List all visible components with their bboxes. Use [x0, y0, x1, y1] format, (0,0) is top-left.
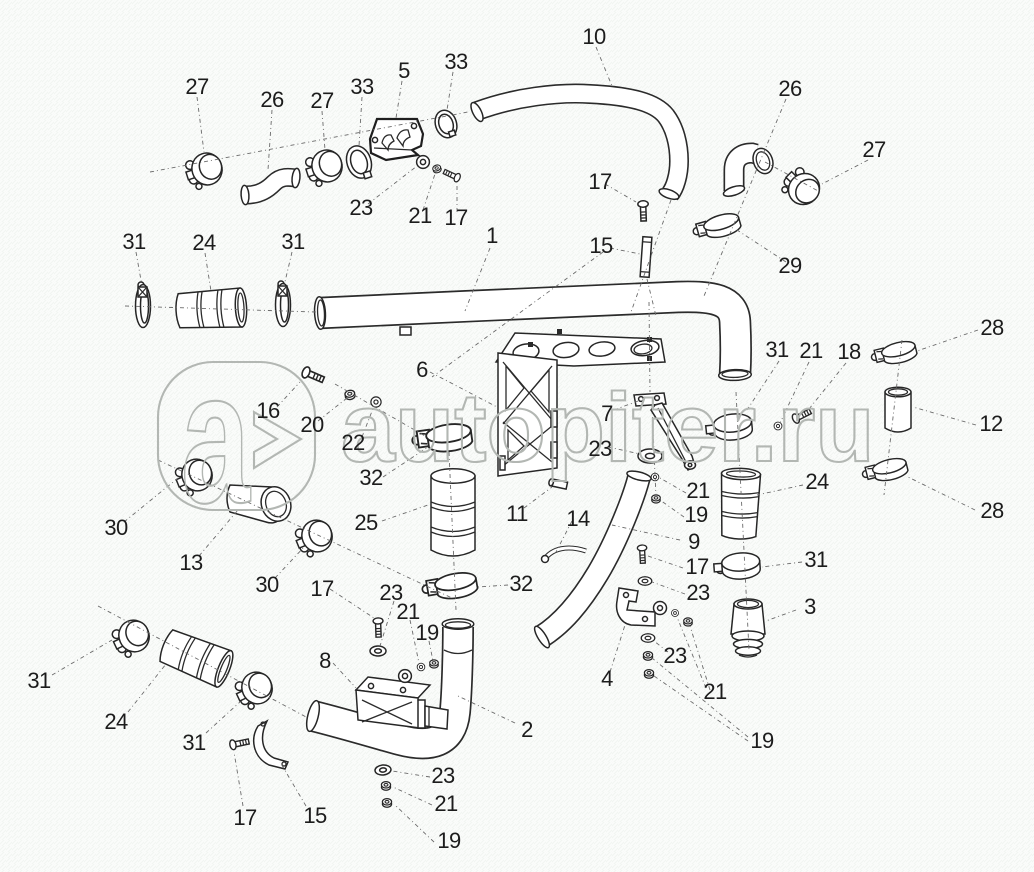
svg-text:31: 31 — [27, 668, 51, 693]
svg-text:19: 19 — [415, 620, 439, 645]
svg-text:14: 14 — [566, 506, 590, 531]
svg-text:23: 23 — [686, 580, 710, 605]
svg-text:31: 31 — [281, 229, 305, 254]
svg-text:28: 28 — [980, 498, 1004, 523]
svg-text:5: 5 — [398, 58, 410, 83]
svg-text:17: 17 — [310, 576, 334, 601]
svg-text:24: 24 — [192, 230, 216, 255]
svg-text:33: 33 — [350, 74, 374, 99]
svg-text:31: 31 — [182, 730, 206, 755]
svg-text:autopiter.ru: autopiter.ru — [341, 373, 875, 482]
svg-text:31: 31 — [804, 547, 828, 572]
svg-text:6: 6 — [416, 357, 428, 382]
svg-text:17: 17 — [588, 169, 612, 194]
svg-text:21: 21 — [686, 478, 710, 503]
svg-text:13: 13 — [179, 550, 203, 575]
svg-text:7: 7 — [601, 401, 613, 426]
svg-text:15: 15 — [589, 233, 613, 258]
svg-text:a: a — [181, 332, 251, 542]
svg-text:21: 21 — [703, 679, 727, 704]
svg-text:24: 24 — [104, 709, 128, 734]
svg-text:19: 19 — [437, 828, 461, 853]
svg-text:16: 16 — [256, 398, 280, 423]
svg-text:26: 26 — [778, 76, 802, 101]
svg-text:12: 12 — [979, 411, 1003, 436]
svg-text:23: 23 — [349, 195, 373, 220]
svg-text:24: 24 — [805, 469, 829, 494]
svg-text:3: 3 — [804, 594, 816, 619]
svg-text:17: 17 — [233, 805, 257, 830]
svg-text:4: 4 — [601, 666, 613, 691]
svg-text:28: 28 — [980, 315, 1004, 340]
svg-text:17: 17 — [685, 554, 709, 579]
svg-text:1: 1 — [486, 223, 498, 248]
svg-text:21: 21 — [799, 338, 823, 363]
svg-text:21: 21 — [408, 203, 432, 228]
svg-text:23: 23 — [431, 763, 455, 788]
svg-text:10: 10 — [582, 24, 606, 49]
svg-text:27: 27 — [862, 137, 886, 162]
svg-text:27: 27 — [310, 88, 334, 113]
svg-text:30: 30 — [104, 515, 128, 540]
svg-text:21: 21 — [434, 791, 458, 816]
svg-text:18: 18 — [837, 339, 861, 364]
svg-text:31: 31 — [122, 229, 146, 254]
svg-text:23: 23 — [663, 643, 687, 668]
svg-text:17: 17 — [444, 205, 468, 230]
svg-text:31: 31 — [765, 337, 789, 362]
svg-text:11: 11 — [506, 501, 528, 526]
svg-text:9: 9 — [688, 529, 700, 554]
svg-text:23: 23 — [588, 436, 612, 461]
svg-text:22: 22 — [341, 430, 365, 455]
svg-text:25: 25 — [354, 510, 378, 535]
svg-text:15: 15 — [303, 803, 327, 828]
svg-text:29: 29 — [778, 253, 802, 278]
svg-text:30: 30 — [255, 572, 279, 597]
svg-text:20: 20 — [300, 412, 324, 437]
svg-text:26: 26 — [260, 87, 284, 112]
svg-text:27: 27 — [185, 74, 209, 99]
svg-text:2: 2 — [521, 717, 533, 742]
svg-text:32: 32 — [359, 465, 383, 490]
svg-text:33: 33 — [444, 49, 468, 74]
svg-text:32: 32 — [509, 571, 533, 596]
svg-text:19: 19 — [750, 728, 774, 753]
svg-text:8: 8 — [319, 648, 331, 673]
svg-text:19: 19 — [684, 502, 708, 527]
